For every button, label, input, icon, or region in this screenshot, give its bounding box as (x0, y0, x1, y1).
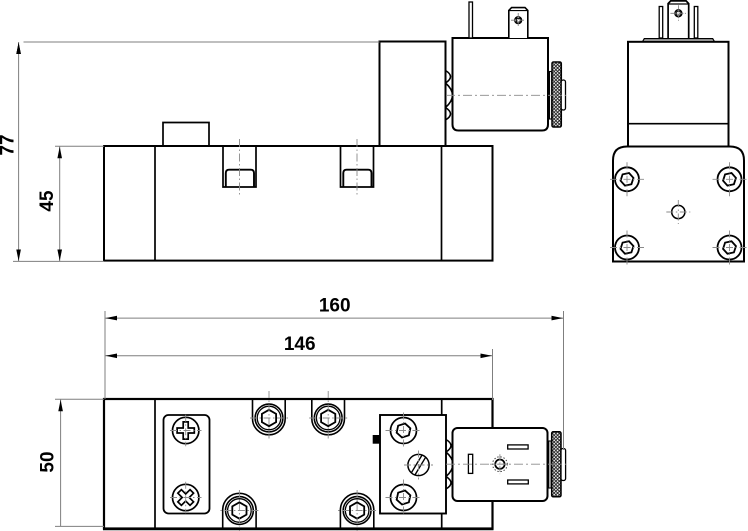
svg-text:77: 77 (0, 134, 19, 155)
svg-text:45: 45 (37, 190, 58, 212)
svg-text:146: 146 (284, 334, 316, 355)
svg-text:160: 160 (319, 296, 351, 317)
svg-text:50: 50 (37, 451, 58, 472)
